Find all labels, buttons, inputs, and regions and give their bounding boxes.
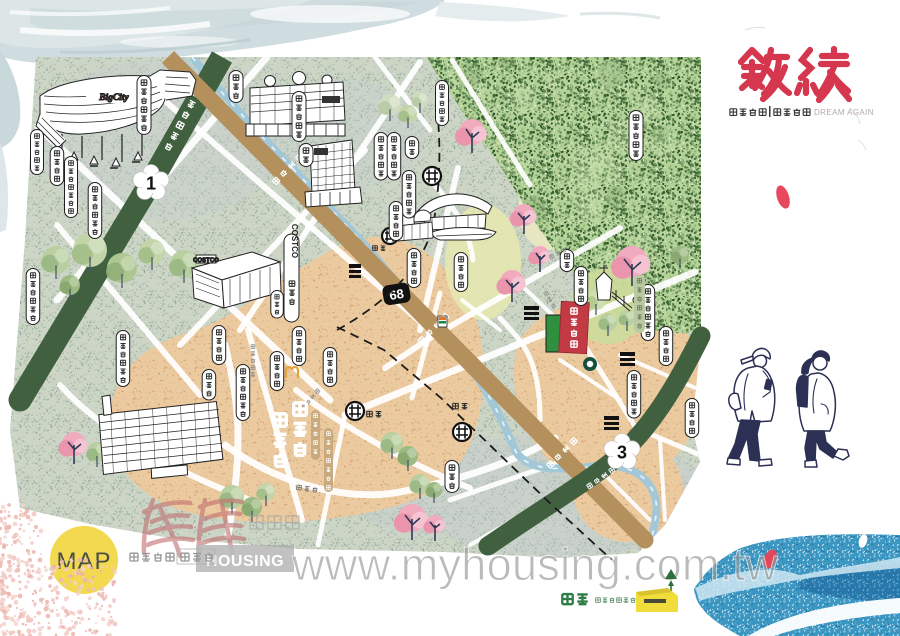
svg-text:1: 1 [146, 174, 156, 194]
svg-text:COSTCO: COSTCO [193, 258, 219, 264]
svg-text:3: 3 [617, 443, 627, 463]
svg-text:COSTCO: COSTCO [290, 224, 299, 258]
svg-text:BigCity: BigCity [98, 93, 129, 103]
svg-text:www.myhousing.com.tw: www.myhousing.com.tw [291, 539, 778, 590]
svg-text:DREAM AGAIN: DREAM AGAIN [814, 108, 874, 117]
svg-text:HOUSING: HOUSING [206, 553, 284, 570]
svg-text:68: 68 [388, 286, 405, 303]
